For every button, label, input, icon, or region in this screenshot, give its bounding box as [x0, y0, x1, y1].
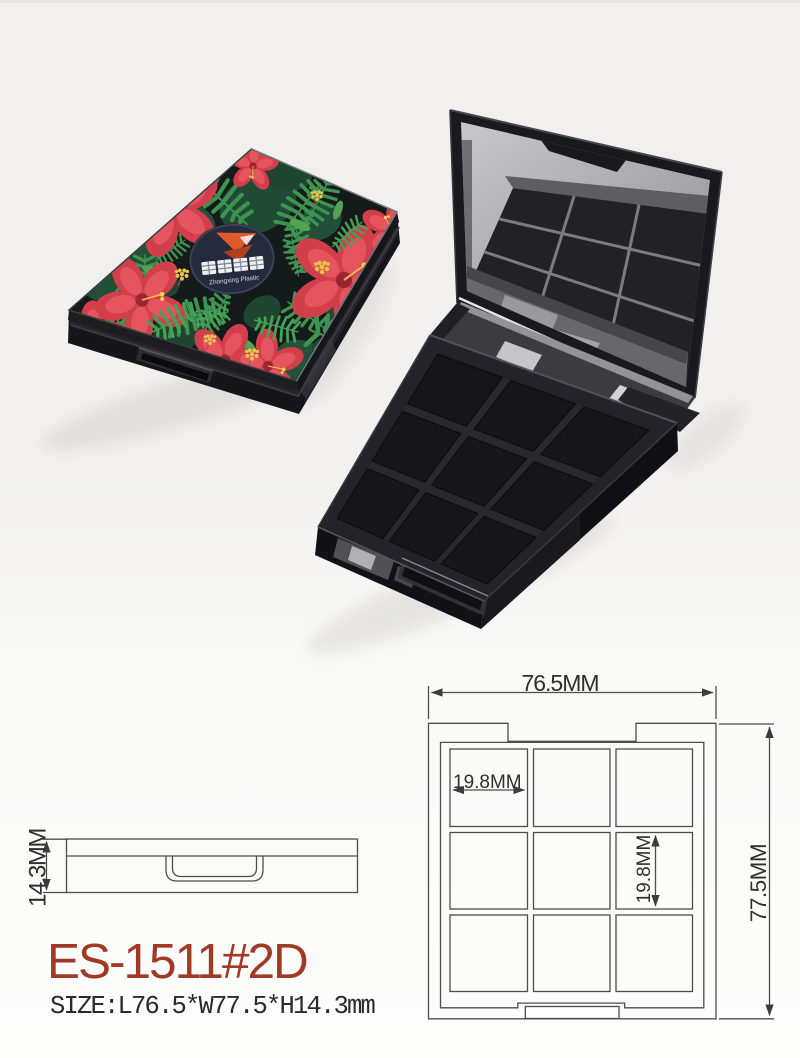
svg-text:76.5MM: 76.5MM [521, 670, 598, 696]
svg-text:19.8MM: 19.8MM [634, 835, 655, 904]
svg-text:SIZE:L76.5*W77.5*H14.3mm: SIZE:L76.5*W77.5*H14.3mm [50, 992, 375, 1021]
svg-text:14.3MM: 14.3MM [25, 829, 52, 907]
svg-text:19.8MM: 19.8MM [453, 772, 522, 793]
svg-text:77.5MM: 77.5MM [746, 844, 771, 922]
svg-text:ES-1511#2D: ES-1511#2D [47, 934, 307, 989]
